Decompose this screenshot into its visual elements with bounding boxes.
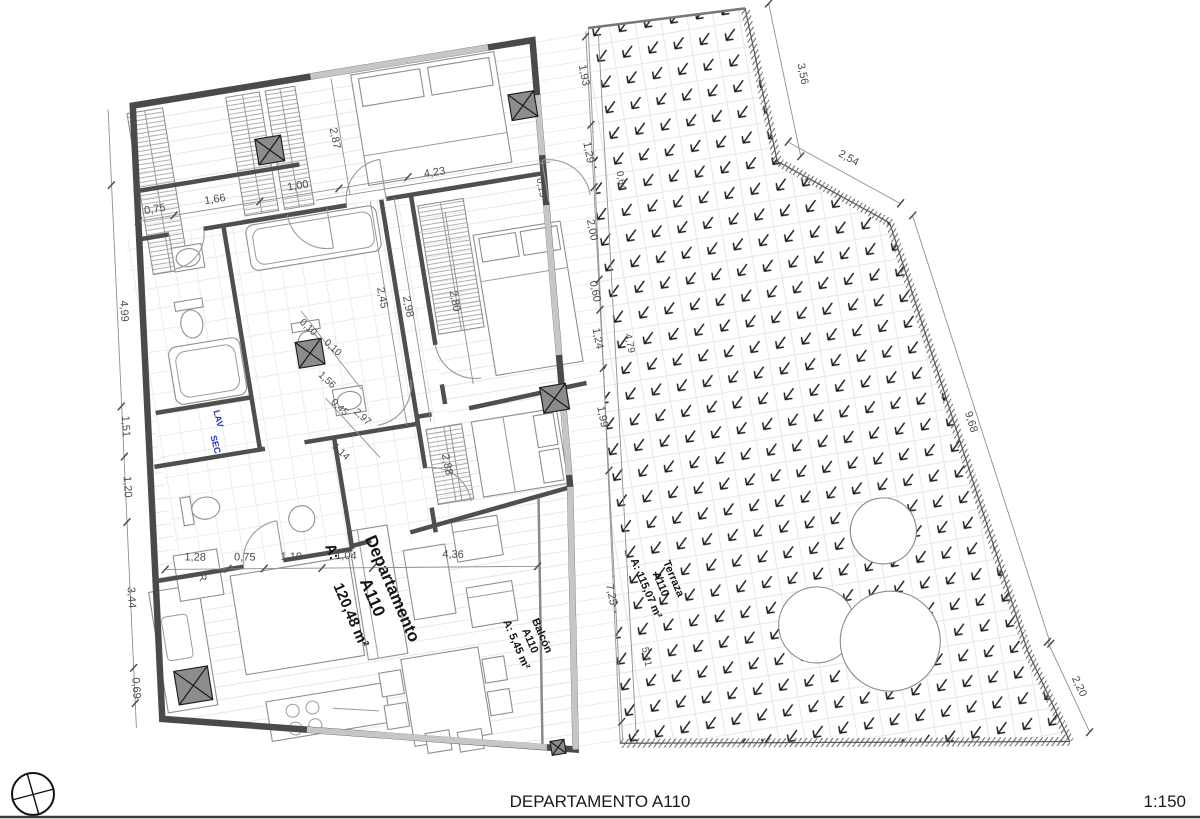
bed-3 bbox=[471, 408, 568, 497]
dim-left-2: 1,51 bbox=[119, 415, 132, 437]
dim-terrace-3: 9,68 bbox=[962, 410, 980, 434]
dim-living-1: 1,28 bbox=[184, 551, 206, 563]
dim-left-1: 4,99 bbox=[117, 300, 130, 322]
dim-living-3: 1,19 bbox=[281, 551, 303, 563]
dim-left-3: 1,20 bbox=[121, 476, 134, 498]
dim-left-4: 3,44 bbox=[125, 587, 138, 609]
floor-plan-sheet: Terraza A110 A: 115,07 m² 3,56 2,54 9,68… bbox=[0, 0, 1200, 819]
bed-1 bbox=[351, 52, 512, 186]
dim-living-4: 1,04 bbox=[335, 550, 357, 562]
dim-terrace-2: 2,54 bbox=[836, 148, 861, 169]
title-block: DEPARTAMENTO A110 1:150 bbox=[0, 773, 1200, 817]
dim-left-5: 0,69 bbox=[129, 677, 142, 699]
dim-living-2: 0,75 bbox=[234, 551, 256, 563]
sheet-title: DEPARTAMENTO A110 bbox=[510, 792, 691, 811]
plan-rotated-group: Terraza A110 A: 115,07 m² 3,56 2,54 9,68… bbox=[35, 0, 1096, 819]
dim-terrace-1: 3,56 bbox=[794, 62, 810, 85]
sheet-scale: 1:150 bbox=[1143, 792, 1186, 811]
dim-living-5: 4,36 bbox=[442, 549, 464, 561]
dim-terrace-4: 2,20 bbox=[1069, 674, 1089, 698]
